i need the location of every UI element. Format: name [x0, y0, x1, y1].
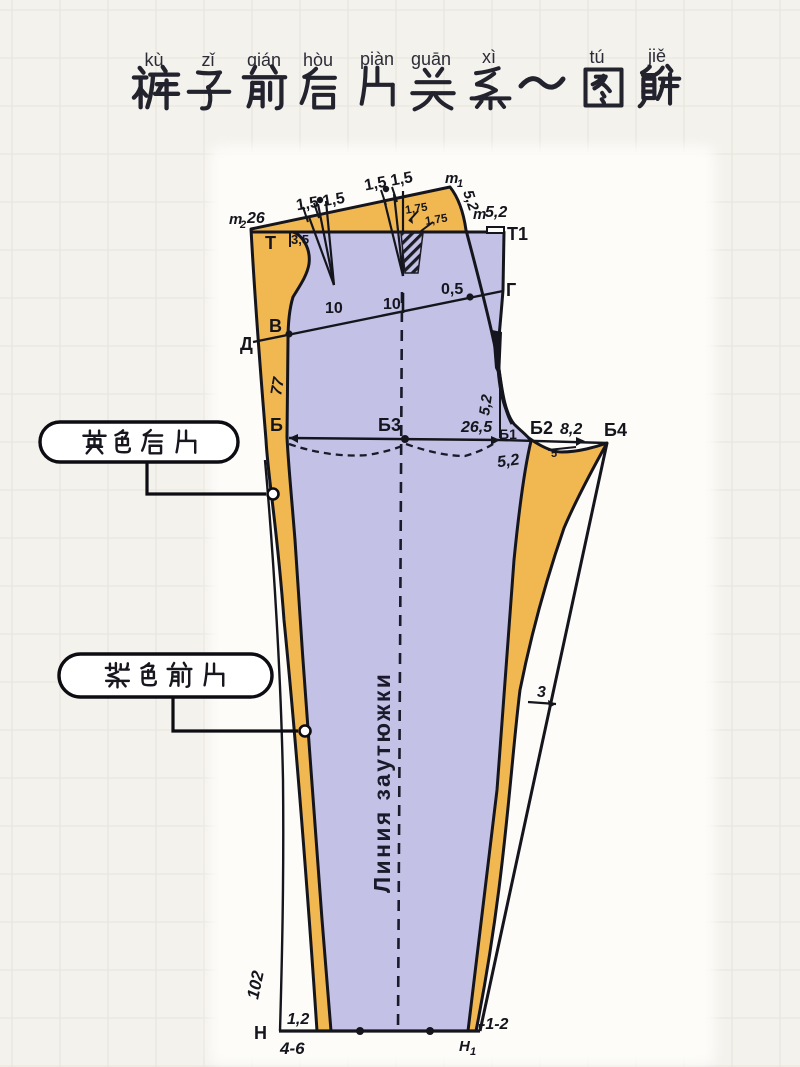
svg-text:guān: guān	[411, 49, 451, 69]
svg-text:Б4: Б4	[604, 420, 627, 440]
svg-text:3,5: 3,5	[291, 232, 309, 247]
svg-text:26: 26	[246, 210, 265, 227]
svg-text:-1-2: -1-2	[480, 1016, 509, 1033]
svg-text:Б: Б	[270, 415, 283, 435]
svg-text:В: В	[269, 316, 282, 336]
svg-text:5,2: 5,2	[476, 393, 496, 417]
svg-text:1: 1	[457, 178, 463, 190]
svg-text:hòu: hòu	[303, 50, 333, 70]
svg-text:Д: Д	[240, 334, 253, 354]
svg-text:5,2: 5,2	[496, 451, 520, 471]
svg-text:5: 5	[551, 448, 557, 460]
svg-text:zǐ: zǐ	[202, 50, 216, 70]
svg-text:0,5: 0,5	[441, 281, 463, 298]
svg-text:5,2: 5,2	[485, 204, 507, 221]
svg-text:Г: Г	[506, 280, 516, 300]
svg-text:1,2: 1,2	[287, 1011, 309, 1028]
svg-text:10: 10	[383, 296, 401, 313]
svg-text:Т: Т	[265, 233, 276, 253]
svg-text:3: 3	[537, 684, 546, 701]
svg-text:26,5: 26,5	[460, 419, 493, 436]
svg-text:2: 2	[239, 219, 246, 231]
svg-text:jiě: jiě	[647, 46, 666, 66]
svg-text:qián: qián	[247, 50, 281, 70]
svg-text:Н: Н	[254, 1023, 267, 1043]
svg-text:xì: xì	[482, 47, 496, 67]
svg-text:1: 1	[470, 1046, 476, 1058]
svg-text:Т1: Т1	[507, 224, 528, 244]
svg-text:Б2: Б2	[530, 418, 553, 438]
svg-text:Б3: Б3	[378, 415, 401, 435]
svg-text:8,2: 8,2	[560, 421, 582, 438]
svg-text:tú: tú	[589, 47, 604, 67]
svg-text:Б1: Б1	[499, 426, 517, 442]
svg-text:10: 10	[325, 300, 343, 317]
svg-text:Линия заутюжки: Линия заутюжки	[369, 672, 395, 893]
svg-text:4-6: 4-6	[279, 1039, 305, 1058]
